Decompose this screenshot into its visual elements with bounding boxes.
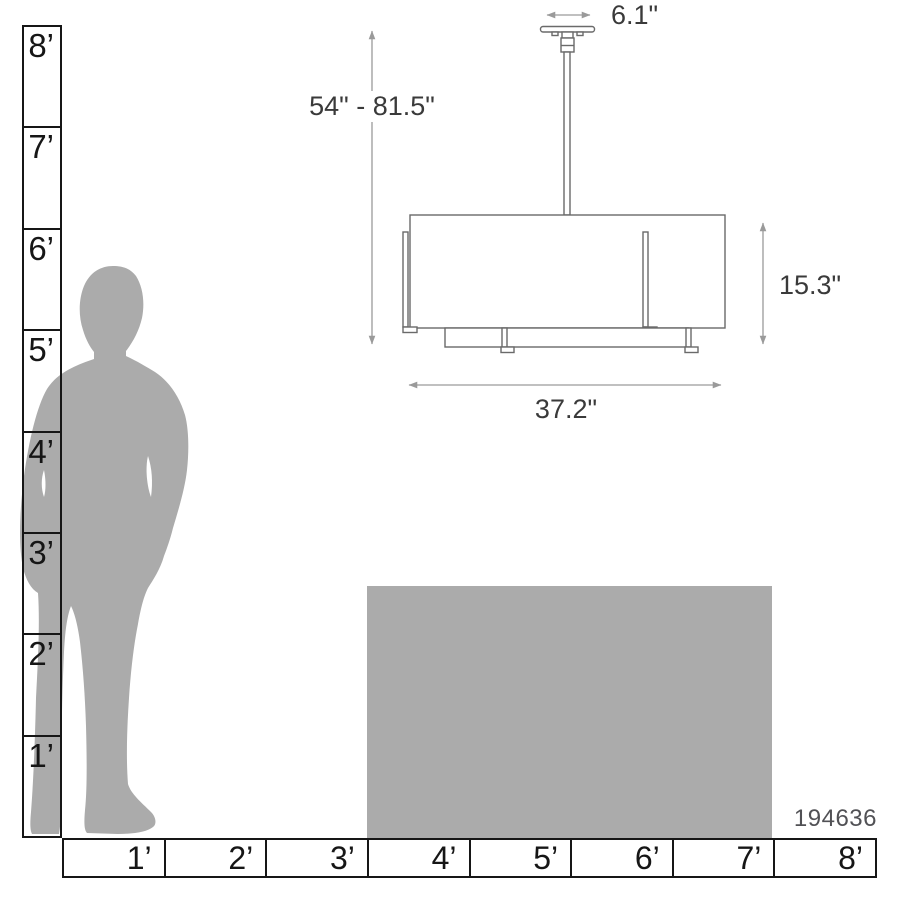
horizontal-ruler-cell-5ft: 5’	[471, 838, 573, 878]
shade-width-label: 37.2"	[535, 394, 597, 425]
canopy-screw-right	[577, 32, 583, 36]
canopy-screw-left	[552, 32, 558, 36]
horizontal-ruler-cell-7ft: 7’	[674, 838, 776, 878]
product-code: 194636	[794, 805, 877, 833]
horizontal-ruler: 1’ 2’ 3’ 4’ 5’ 6’ 7’ 8’	[62, 838, 877, 878]
horizontal-ruler-cell-3ft: 3’	[267, 838, 369, 878]
horizontal-ruler-cell-1ft: 1’	[62, 838, 166, 878]
shade-height-label: 15.3"	[779, 270, 841, 301]
dimension-lines	[372, 15, 763, 385]
horizontal-ruler-cell-4ft: 4’	[369, 838, 471, 878]
table-scale-block	[367, 586, 772, 838]
inner-shade-post-left	[502, 328, 507, 347]
accent-bar-left-foot	[403, 327, 417, 333]
rod-coupler	[561, 38, 574, 52]
horizontal-ruler-cell-6ft: 6’	[572, 838, 674, 878]
overall-height-label: 54" - 81.5"	[301, 91, 443, 122]
vertical-ruler-cell-2ft: 2’	[22, 635, 62, 736]
canopy-plate	[541, 27, 595, 33]
inner-shade-post-right-foot	[685, 347, 698, 353]
vertical-ruler-cell-7ft: 7’	[22, 128, 62, 229]
vertical-ruler-cell-5ft: 5’	[22, 331, 62, 432]
accent-bar-right	[643, 232, 648, 327]
vertical-ruler: 8’ 7’ 6’ 5’ 4’ 3’ 2’ 1’	[22, 25, 62, 838]
hand-gap-right	[147, 456, 152, 497]
inner-shade	[445, 328, 688, 347]
hanger-rod	[564, 52, 570, 215]
vertical-ruler-cell-4ft: 4’	[22, 433, 62, 534]
inner-shade-post-left-foot	[501, 347, 514, 353]
outer-shade	[410, 215, 725, 328]
accent-bar-left	[403, 232, 408, 327]
horizontal-ruler-cell-8ft: 8’	[775, 838, 877, 878]
inner-shade-post-right	[686, 328, 691, 347]
vertical-ruler-cell-6ft: 6’	[22, 230, 62, 331]
accent-bar-right-foot	[643, 327, 657, 333]
vertical-ruler-cell-1ft: 1’	[22, 737, 62, 838]
vertical-ruler-cell-8ft: 8’	[22, 25, 62, 128]
horizontal-ruler-cell-2ft: 2’	[166, 838, 268, 878]
canopy-width-label: 6.1"	[611, 0, 658, 31]
light-fixture	[403, 27, 725, 353]
canopy-hub	[562, 32, 573, 38]
size-guide-diagram: 8’ 7’ 6’ 5’ 4’ 3’ 2’ 1’ 1’ 2’ 3’ 4’ 5’ 6…	[0, 0, 900, 900]
vertical-ruler-cell-3ft: 3’	[22, 534, 62, 635]
